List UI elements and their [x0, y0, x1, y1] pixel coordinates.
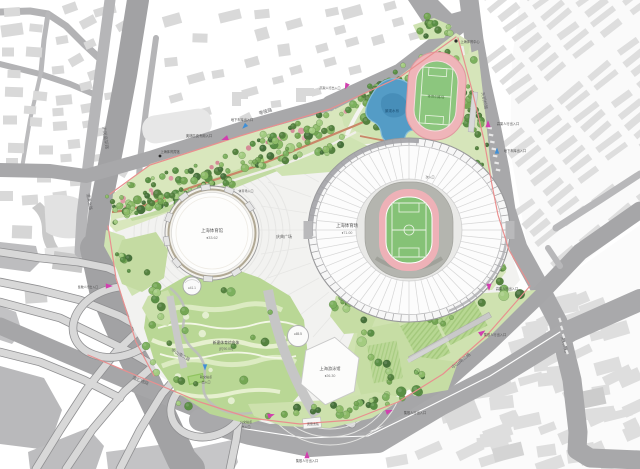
svg-text:♦71.00: ♦71.00 [342, 231, 353, 235]
svg-text:地下车库出入口: 地下车库出入口 [504, 148, 526, 153]
svg-text:♦41.1: ♦41.1 [188, 286, 196, 290]
svg-text:集散人行出入口: 集散人行出入口 [78, 284, 98, 289]
svg-text:轨交站点: 轨交站点 [200, 374, 212, 379]
svg-text:高架人行出入口: 高架人行出入口 [496, 286, 518, 291]
svg-text:奥林匹克专用入口: 奥林匹克专用入口 [186, 133, 212, 138]
svg-text:集散人行出入口: 集散人行出入口 [404, 410, 426, 415]
svg-text:景观水系: 景观水系 [385, 108, 400, 113]
svg-text:集散人行出入口: 集散人行出入口 [296, 458, 318, 463]
svg-text:(约90.00): (约90.00) [219, 346, 233, 351]
svg-text:上海体育中心: 上海体育中心 [460, 39, 480, 44]
svg-text:新建体育综合体: 新建体育综合体 [213, 340, 240, 345]
svg-text:集散人行出入口: 集散人行出入口 [484, 332, 506, 337]
svg-text:体育场入口: 体育场入口 [238, 188, 253, 193]
svg-text:高架人行出入口: 高架人行出入口 [319, 85, 340, 90]
svg-text:出入口: 出入口 [241, 424, 250, 429]
svg-text:高架人行出入口: 高架人行出入口 [497, 121, 519, 126]
svg-text:地下车库出入口: 地下车库出入口 [231, 117, 253, 122]
svg-text:次入口: 次入口 [425, 174, 434, 179]
svg-text:上海体育宾馆: 上海体育宾馆 [160, 149, 179, 154]
svg-text:出入口: 出入口 [201, 379, 210, 384]
svg-text:庆典广场: 庆典广场 [276, 233, 292, 239]
svg-text:上海体育馆: 上海体育馆 [201, 227, 224, 234]
svg-text:武警支队: 武警支队 [307, 421, 319, 426]
svg-text:上海体育场: 上海体育场 [336, 222, 359, 229]
svg-text:上海游泳馆: 上海游泳馆 [320, 365, 341, 372]
svg-text:公交站点: 公交站点 [240, 419, 252, 424]
svg-text:♦26.30: ♦26.30 [325, 374, 336, 378]
svg-text:♦65.5: ♦65.5 [294, 332, 302, 336]
svg-text:♦33.62: ♦33.62 [206, 236, 217, 240]
